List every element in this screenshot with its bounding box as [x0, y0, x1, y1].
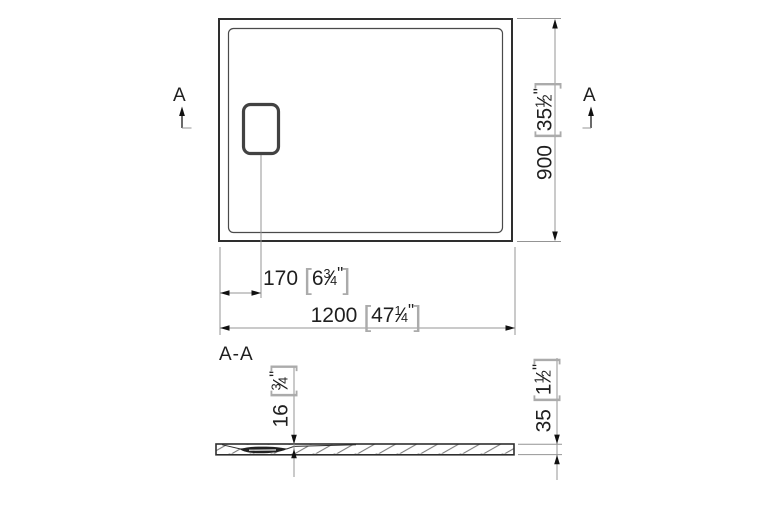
- dim-width-inch-denominator: 4: [401, 311, 408, 325]
- dim-height-inch-denominator: 2: [541, 94, 555, 101]
- close-bracket: ]: [529, 357, 561, 365]
- open-bracket: [: [530, 131, 562, 139]
- close-bracket: ]: [530, 81, 562, 89]
- dim-height-label: 900[351⁄2"]: [527, 61, 554, 201]
- inch-mark: ": [530, 89, 550, 94]
- section-direction-up-arrow-icon: [588, 107, 594, 117]
- dim-thickness-inch-whole: 1: [532, 384, 555, 396]
- dim-height-inch-whole: 35: [533, 108, 556, 131]
- arrow-right-icon: [252, 290, 262, 296]
- section-view-label: A-A: [219, 344, 254, 366]
- inch-mark: ": [529, 365, 549, 370]
- dim-thickness-label: 35[11⁄2"]: [526, 350, 553, 440]
- arrow-up-icon: [554, 455, 560, 464]
- top-view: [219, 19, 512, 298]
- inch-mark: ": [266, 371, 286, 376]
- dim-height-mm: 900: [533, 145, 556, 180]
- arrow-down-icon: [291, 435, 297, 444]
- dim-offset-inch-whole: 6: [312, 267, 324, 290]
- dim-width-mm: 1200: [311, 304, 358, 327]
- arrow-down-icon: [552, 232, 558, 242]
- drain-outline: [244, 105, 279, 154]
- open-bracket: [: [529, 395, 561, 403]
- dim-thickness-mm: 35: [532, 409, 555, 432]
- dim-depth-label: 16[3⁄4"]: [263, 356, 290, 436]
- section-marker-left: [179, 107, 191, 129]
- close-bracket: ]: [266, 363, 298, 371]
- dim-thickness-inch-denominator: 2: [540, 370, 554, 377]
- section-direction-up-arrow-icon: [179, 107, 185, 117]
- dim-width-inch-whole: 47: [371, 304, 394, 327]
- dim-depth-inch-denominator: 4: [277, 377, 291, 384]
- arrow-up-icon: [552, 19, 558, 29]
- dim-depth-mm: 16: [269, 404, 292, 427]
- open-bracket: [: [363, 301, 371, 333]
- arrow-left-icon: [220, 325, 230, 331]
- arrow-left-icon: [220, 290, 230, 296]
- arrow-down-icon: [554, 435, 560, 444]
- open-bracket: [: [304, 264, 312, 296]
- section-marker-left-letter: A: [173, 85, 186, 107]
- section-marker-right: [583, 107, 594, 129]
- technical-drawing-page: A A 1200[471⁄4"] 170[63⁄4"] 900[351⁄2"] …: [0, 0, 770, 520]
- dim-drain-offset-label: 170[63⁄4"]: [263, 260, 350, 287]
- close-bracket: ]: [413, 301, 421, 333]
- close-bracket: ]: [343, 264, 351, 296]
- dim-offset-mm: 170: [263, 267, 298, 290]
- section-marker-right-letter: A: [583, 85, 596, 107]
- open-bracket: [: [266, 390, 298, 398]
- section-view: [216, 444, 514, 455]
- dim-width-label: 1200[471⁄4"]: [266, 297, 466, 324]
- arrow-right-icon: [506, 325, 516, 331]
- drawing-linework: [0, 0, 770, 520]
- dim-drain-offset-170: [220, 247, 261, 335]
